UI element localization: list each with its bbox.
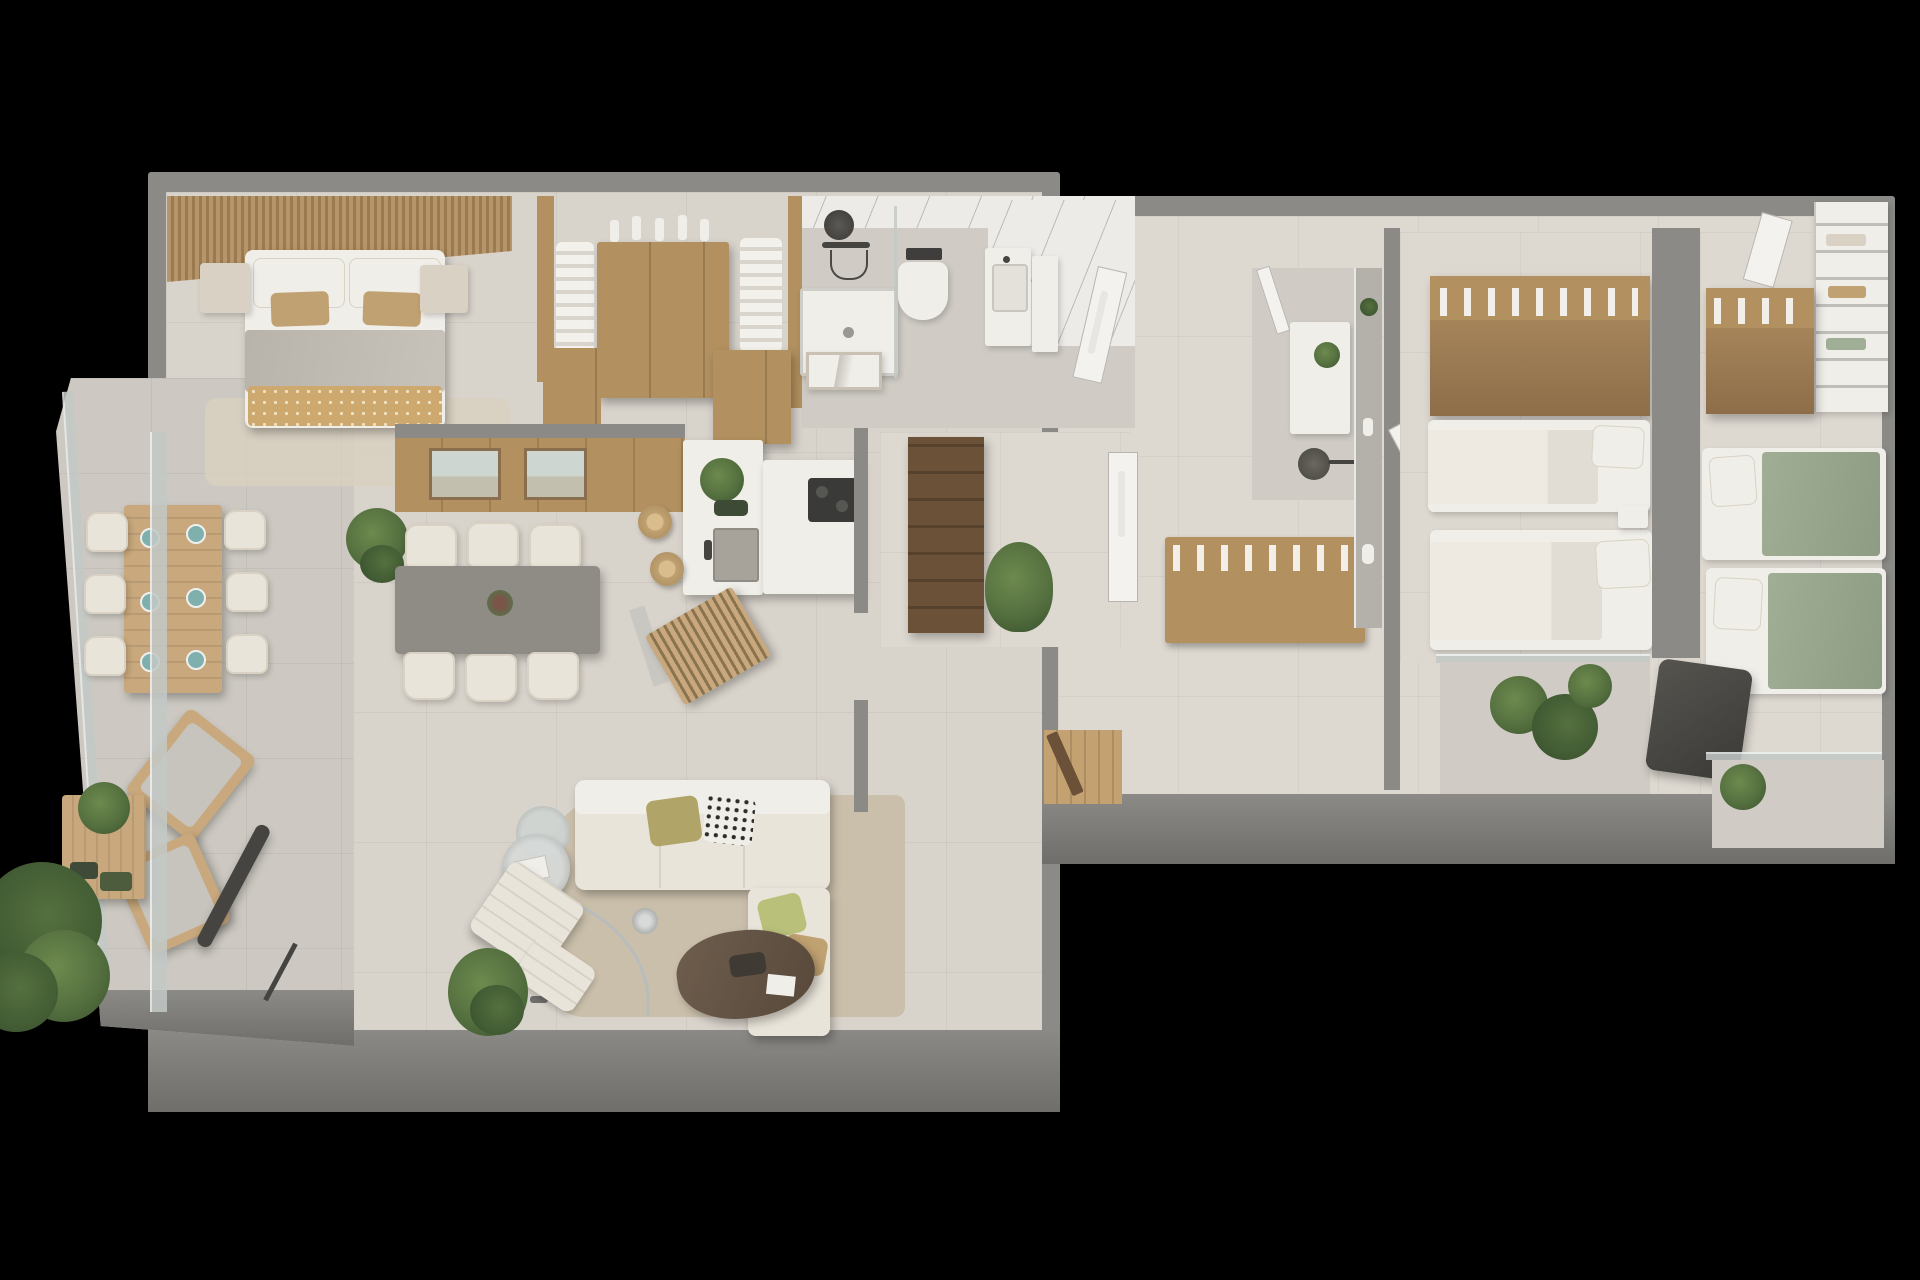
shower-hose <box>830 250 868 280</box>
dining-chair <box>529 524 581 570</box>
shower-drain <box>843 327 854 338</box>
patterned-cushion <box>702 794 757 847</box>
display-shelf-column <box>1354 268 1382 628</box>
bathroom-vanity <box>985 248 1031 346</box>
outdoor-dining-table <box>124 505 222 693</box>
olive-cushion <box>645 795 703 848</box>
bathroom2-vanity <box>1290 322 1350 434</box>
utility-shelving <box>908 437 984 633</box>
dining-chair <box>465 654 517 702</box>
outdoor-chair <box>84 574 126 614</box>
bar-stool <box>638 505 672 539</box>
vanity-plant <box>1314 342 1340 368</box>
teal-place-setting <box>186 588 206 608</box>
vanity-faucet <box>1003 256 1010 263</box>
living-hall-wall <box>854 428 868 613</box>
shelf-plant <box>1360 298 1378 316</box>
outdoor-chair <box>84 636 126 676</box>
burner <box>816 486 828 498</box>
folded-clothes <box>1828 286 1866 298</box>
balcony-plant <box>1568 664 1612 708</box>
dining-chair <box>403 652 455 700</box>
shelf-vase <box>1363 418 1373 436</box>
hanging-clothes-rail <box>740 238 782 352</box>
perfume-bottle <box>610 220 619 242</box>
bedroom3-balcony-glass <box>1706 752 1882 760</box>
tall-bath-cabinet <box>1032 256 1058 352</box>
wall-hung-toilet <box>898 262 948 320</box>
coat-hangers-row <box>1173 545 1357 571</box>
leaning-framed-art <box>806 352 882 390</box>
kitchen-sink <box>713 528 759 582</box>
accent-cushion <box>362 291 421 327</box>
bedroom2-wardrobe <box>1430 276 1650 416</box>
bedroom2-bed-2 <box>1430 530 1652 650</box>
perfume-bottle <box>678 215 687 240</box>
sink-faucet <box>704 540 712 560</box>
palm-plant <box>470 985 524 1035</box>
magazine <box>766 974 796 997</box>
framed-landscape-art <box>524 448 587 500</box>
folded-clothes <box>1826 234 1866 246</box>
wardrobe-hangers-row <box>1440 288 1638 316</box>
hanging-clothes-rail <box>556 242 594 354</box>
kitchen-tall-cabinet <box>713 350 791 444</box>
perfume-bottle <box>655 218 664 241</box>
utility-plant <box>985 542 1053 632</box>
bedroom23-divider-wall <box>1652 228 1700 658</box>
living-hall-wall <box>854 700 868 812</box>
cooktop <box>808 478 858 522</box>
left-wing-bottom-wall <box>148 1028 1060 1112</box>
wardrobe-front-face <box>1430 320 1650 416</box>
bed-pillow <box>1595 539 1651 590</box>
sage-blanket <box>1768 573 1882 689</box>
sage-blanket <box>1762 452 1880 556</box>
shower-glass-screen <box>894 206 897 378</box>
burner <box>836 500 848 512</box>
herb-planter-tray <box>714 500 748 516</box>
teal-place-setting <box>186 650 206 670</box>
arc-lamp-shade <box>632 908 658 934</box>
table-tray <box>728 951 767 978</box>
bedroom3-wardrobe <box>1706 288 1814 414</box>
kitchen-tall-cabinet <box>543 348 601 434</box>
door-towel <box>1118 471 1125 537</box>
rain-shower-head <box>824 210 854 240</box>
sofa-backrest <box>575 780 830 814</box>
toilet-flush-plate <box>906 248 942 260</box>
vanity-basin <box>992 264 1028 312</box>
shower-mixer-bar <box>822 242 870 248</box>
bedroom3-bed-1 <box>1702 448 1886 560</box>
nightstand <box>200 263 250 313</box>
balcony3-plant <box>1720 764 1766 810</box>
teal-place-setting <box>186 524 206 544</box>
outdoor-chair <box>224 510 266 550</box>
door-towel <box>1087 290 1108 354</box>
island-herb-plant <box>700 458 744 502</box>
round-dark-basin <box>1298 448 1330 480</box>
bar-stool <box>650 552 684 586</box>
dining-wall-top <box>395 424 685 438</box>
perfume-bottle <box>632 216 641 240</box>
floor-plan-render <box>0 0 1920 1280</box>
bed-duvet <box>1430 542 1602 640</box>
dining-chair <box>467 522 519 568</box>
bed-duvet <box>1428 430 1598 504</box>
bed-pillow <box>1713 577 1764 631</box>
hall-coat-closet <box>1165 537 1365 643</box>
wardrobe-hangers-row <box>1714 298 1806 324</box>
folded-clothes <box>1826 338 1866 350</box>
closet-island-dresser <box>597 242 729 398</box>
bedroom2-bed-1 <box>1428 420 1650 512</box>
nightstand <box>420 265 468 313</box>
terrace-tray <box>100 872 132 891</box>
utility-door <box>1108 452 1138 602</box>
bed-pillow <box>1708 454 1757 507</box>
living-terrace-glass-wall <box>150 432 167 1012</box>
perfume-bottle <box>700 219 709 241</box>
bed-pillow <box>1591 425 1645 470</box>
bed-duvet-grey <box>245 330 445 392</box>
hall-bedroom2-wall <box>1384 228 1400 790</box>
dining-chair <box>405 524 457 570</box>
framed-landscape-art <box>429 448 501 500</box>
bedroom2-nightstand <box>1618 506 1648 528</box>
outdoor-chair <box>226 572 268 612</box>
dining-chair <box>527 652 579 700</box>
shelf-vase <box>1362 544 1374 564</box>
table-vase-flowers <box>487 590 513 616</box>
terrace-table-plant <box>78 782 130 834</box>
outdoor-chair <box>226 634 268 674</box>
woven-blanket <box>248 386 442 426</box>
wardrobe-front-face <box>1706 328 1814 414</box>
bedroom3-white-closet <box>1814 202 1888 412</box>
accent-cushion <box>270 291 329 327</box>
outdoor-chair <box>86 512 128 552</box>
